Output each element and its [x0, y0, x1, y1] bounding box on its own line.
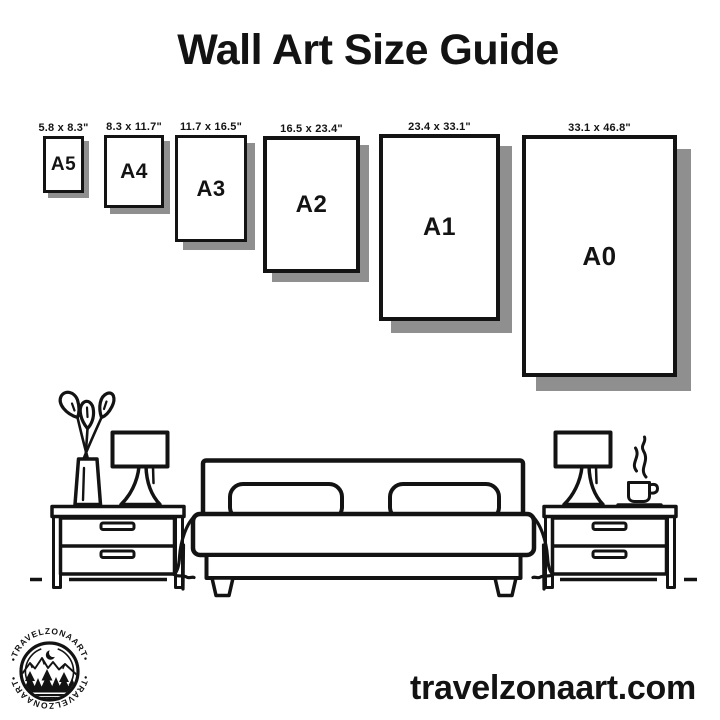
bed	[174, 461, 553, 596]
steam-line-left	[634, 448, 637, 471]
brand-logo: •TRAVELZONAART• •TRAVELZONAART•	[2, 621, 97, 716]
paper-a2-code: A2	[296, 191, 328, 219]
vase-body	[75, 459, 101, 505]
left-nightstand	[52, 507, 184, 588]
paper-a4: 8.3 x 11.7" A4	[104, 135, 164, 208]
paper-a1-code: A1	[423, 213, 456, 242]
right-table-lamp	[556, 433, 611, 505]
leaf-left	[60, 392, 79, 417]
paper-a3-code: A3	[196, 176, 225, 202]
steam-line-right	[642, 437, 646, 477]
website-url: travelzonaart.com	[410, 669, 696, 708]
bedroom-illustration	[25, 385, 700, 600]
paper-a1: 23.4 x 33.1" A1	[379, 134, 500, 321]
cup-body	[629, 483, 650, 502]
paper-a4-dimensions: 8.3 x 11.7"	[106, 121, 162, 133]
right-nightstand	[544, 507, 676, 588]
page-title: Wall Art Size Guide	[177, 26, 559, 75]
leaf-right	[100, 393, 114, 417]
paper-a1-dimensions: 23.4 x 33.1"	[408, 121, 471, 133]
paper-a0-code: A0	[582, 241, 616, 272]
paper-a5: 5.8 x 8.3" A5	[43, 136, 84, 193]
left-table-lamp	[113, 433, 168, 505]
bed-leg-right	[495, 578, 516, 596]
paper-a3: 11.7 x 16.5" A3	[175, 135, 247, 242]
coffee-cup	[618, 437, 661, 505]
paper-a0-dimensions: 33.1 x 46.8"	[568, 122, 631, 134]
paper-a0: 33.1 x 46.8" A0	[522, 135, 677, 377]
vase-with-leaves	[60, 392, 114, 504]
bed-base	[207, 555, 521, 578]
paper-a2-dimensions: 16.5 x 23.4"	[280, 123, 343, 135]
mattress	[193, 514, 534, 555]
paper-a3-dimensions: 11.7 x 16.5"	[180, 121, 242, 133]
paper-a4-code: A4	[120, 160, 148, 184]
paper-a5-dimensions: 5.8 x 8.3"	[38, 122, 88, 134]
bed-leg-left	[212, 578, 233, 596]
paper-a2: 16.5 x 23.4" A2	[263, 136, 360, 273]
paper-a5-code: A5	[51, 154, 76, 176]
